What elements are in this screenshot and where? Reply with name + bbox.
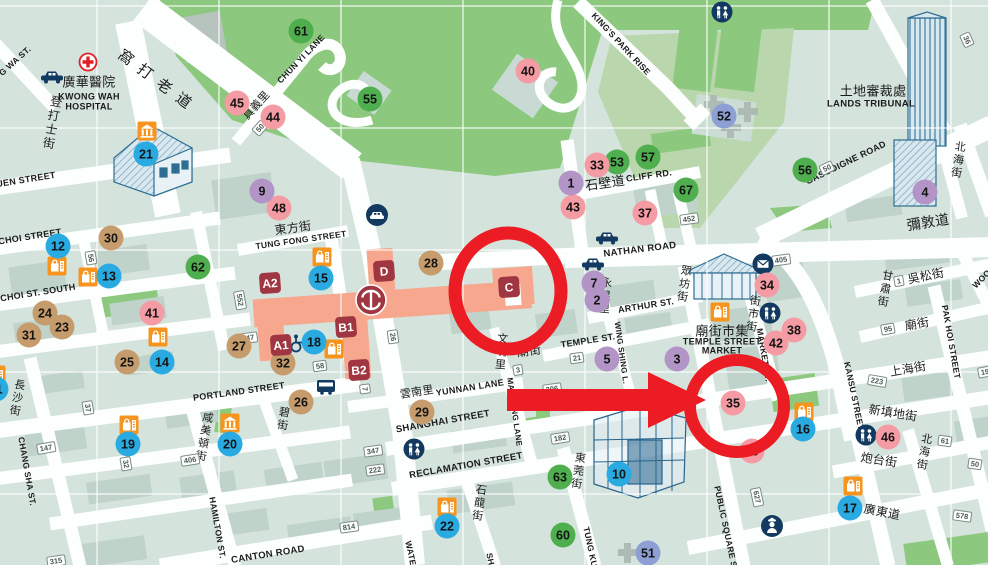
poi-marker-21: 21 (134, 142, 159, 167)
toilets-icon (403, 438, 425, 460)
street-label: 長沙街 (7, 378, 25, 418)
tourist-street-map: G WA ST.登打士街廣華醫院KWONG WAHHOSPITAL窩打老道UEN… (0, 0, 988, 565)
map-labels-layer: G WA ST.登打士街廣華醫院KWONG WAHHOSPITAL窩打老道UEN… (0, 0, 988, 565)
poi-marker-9: 9 (250, 179, 275, 204)
street-label: KING'S PARK RISE (590, 11, 652, 77)
poi-marker-11: 11 (0, 377, 9, 402)
road-number-box: 1 (893, 275, 905, 288)
street-label: 新填地街 (868, 403, 918, 423)
poi-marker-42: 42 (764, 331, 789, 356)
poi-marker-2: 2 (585, 288, 610, 313)
street-label: CHANG SHA ST. (17, 436, 37, 506)
street-label: 北海街 (914, 432, 932, 472)
poi-marker-3: 3 (665, 347, 690, 372)
shop-icon (711, 303, 730, 322)
street-label: PAK HOI STREET (940, 304, 961, 379)
poi-marker-19: 19 (116, 432, 141, 457)
station-exit-D: D (373, 260, 395, 282)
street-label: 窩打老道 (115, 47, 201, 117)
road-number-box: 58 (312, 360, 328, 373)
street-label: PORTLAND STREET (193, 381, 286, 403)
poi-marker-33: 33 (585, 153, 610, 178)
poi-marker-55: 55 (358, 87, 383, 112)
street-label: 文明里 (493, 332, 507, 372)
street-label: SHEK LUNG ST. (485, 552, 508, 565)
station-exit-A1: A1 (270, 334, 292, 356)
road-number-box: 19 (977, 365, 988, 378)
street-label: UEN STREET (0, 171, 56, 189)
shop-icon (313, 248, 332, 267)
road-number-box: 552 (233, 290, 247, 310)
poi-marker-29: 29 (410, 400, 435, 425)
poi-marker-43: 43 (561, 195, 586, 220)
poi-marker-44: 44 (261, 105, 286, 130)
street-label: YUNNAN LANE (435, 378, 504, 398)
street-label: WATERLOO (404, 540, 423, 565)
poi-marker-17: 17 (838, 496, 863, 521)
police-icon (760, 514, 784, 538)
street-label: 眾坊街 (675, 264, 691, 304)
poi-marker-14: 14 (150, 350, 175, 375)
poi-marker-27: 27 (227, 334, 252, 359)
shop-icon (844, 477, 863, 496)
shop-icon (325, 340, 344, 359)
poi-marker-52: 52 (712, 104, 737, 129)
street-label: 碧街 (275, 405, 290, 432)
shop-icon (79, 268, 98, 287)
poi-marker-34: 34 (755, 273, 780, 298)
station-exit-B2: B2 (348, 359, 370, 381)
poi-marker-60: 60 (551, 523, 576, 548)
road-number-box: 36 (959, 31, 975, 49)
street-label: CANTON ROAD (231, 544, 306, 565)
road-number-box: 405 (771, 253, 791, 266)
street-label: 雲南里 (399, 385, 434, 401)
street-label: PUBLIC SQUARE ST. (713, 485, 740, 565)
road-number-box: 95 (880, 322, 896, 335)
poi-marker-16: 16 (791, 417, 816, 442)
street-label: WOOSUNG ST. (971, 238, 988, 290)
poi-marker-57: 57 (636, 145, 661, 170)
poi-marker-62: 62 (186, 255, 211, 280)
street-label: TUNG KUN ST. (582, 526, 603, 565)
poi-marker-25: 25 (115, 350, 140, 375)
road-number-box: 147 (36, 441, 56, 455)
poi-marker-30: 30 (99, 226, 124, 251)
poi-marker-28: 28 (419, 251, 444, 276)
road-number-box: 315 (46, 554, 66, 565)
taxi-icon (40, 70, 64, 84)
road-number-box: 21 (569, 352, 585, 365)
poi-marker-20: 20 (218, 432, 243, 457)
taxi-icon (595, 231, 619, 245)
road-number-box: 26 (387, 329, 400, 345)
road-number-box: 37 (81, 400, 94, 416)
road-number-box: 61 (937, 435, 953, 448)
road-number-box: 50 (967, 458, 983, 471)
poi-marker-10: 10 (607, 462, 632, 487)
poi-marker-63: 63 (548, 465, 573, 490)
poi-marker-5: 5 (595, 347, 620, 372)
street-label: 北海街 (949, 140, 965, 180)
road-number-box: 306 (542, 382, 562, 395)
poi-marker-37: 37 (633, 201, 658, 226)
bus-icon (315, 379, 337, 395)
road-number-box: 3 (512, 364, 524, 376)
station-exit-B1: B1 (335, 316, 357, 338)
street-label: KWONG WAH (58, 93, 120, 102)
toilets-icon (711, 1, 733, 23)
poi-marker-22: 22 (435, 514, 460, 539)
toilets-icon (855, 424, 877, 446)
street-label: G WA ST. (0, 45, 32, 78)
poi-marker-45: 45 (225, 91, 250, 116)
poi-marker-31: 31 (17, 323, 42, 348)
poi-marker-46: 46 (876, 425, 901, 450)
poi-marker-67: 67 (674, 178, 699, 203)
poi-marker-61: 61 (289, 19, 314, 44)
street-label: 廣東道 (863, 503, 902, 522)
street-label: MARKET (702, 347, 742, 356)
poi-marker-4: 4 (913, 180, 938, 205)
road-number-box: 222 (365, 463, 385, 476)
street-label: MAN MING LANE (505, 377, 523, 447)
museum-icon (221, 414, 240, 433)
road-number-box: 32 (119, 456, 132, 472)
street-label: ARTHUR ST. (617, 297, 674, 315)
street-label: KANSU STREET (843, 361, 866, 431)
poi-marker-26: 26 (289, 390, 314, 415)
street-label: 廟街 (904, 316, 930, 332)
street-label: 石壁道 (584, 174, 625, 192)
carpark-icon (365, 203, 389, 227)
poi-marker-15: 15 (309, 266, 334, 291)
museum-icon (138, 122, 157, 141)
poi-marker-56: 56 (793, 158, 818, 183)
poi-marker-39: 39 (740, 439, 765, 464)
road-number-box: 347 (363, 444, 383, 457)
street-label: HOSPITAL (65, 103, 112, 112)
road-number-box: 182 (550, 431, 570, 445)
poi-marker-18: 18 (302, 330, 327, 355)
road-number-box: 7 (359, 383, 371, 395)
poi-marker-41: 41 (140, 301, 165, 326)
street-label: 廟街 (516, 343, 542, 358)
shop-icon (149, 328, 168, 347)
street-label: HAMILTON ST. (208, 496, 227, 559)
street-label: 上海街 (889, 360, 927, 378)
street-label: 廣華醫院 (62, 76, 115, 89)
mtr-icon (354, 283, 388, 317)
road-number-box: 814 (339, 520, 359, 533)
station-exit-C: C (498, 276, 520, 298)
street-label: 炮台街 (860, 451, 898, 469)
road-number-box: 406 (180, 453, 200, 467)
road-number-box: 452 (679, 212, 699, 225)
poi-marker-13: 13 (97, 264, 122, 289)
poi-marker-51: 51 (636, 541, 661, 565)
road-number-box: 223 (867, 374, 887, 388)
street-label: RECLAMATION STREET (409, 451, 524, 480)
street-label: CHOI ST. SOUTH (0, 283, 76, 304)
street-label: CLIFF RD. (625, 168, 672, 183)
street-label: LANDS TRIBUNAL (827, 99, 915, 109)
street-label: 彌敦道 (906, 212, 951, 233)
toilets-icon (759, 302, 781, 324)
taxi-icon (581, 257, 605, 271)
road-number-box: 56 (84, 250, 97, 266)
road-number-box: 578 (952, 509, 972, 522)
poi-marker-12: 12 (46, 234, 71, 259)
street-label: GASCOIGNE ROAD (804, 140, 887, 187)
street-label: 石龍街 (470, 483, 486, 523)
poi-marker-35: 35 (721, 391, 746, 416)
street-label: 登打士街 (41, 94, 63, 151)
station-exit-A2: A2 (259, 272, 281, 294)
street-label: 吳松街 (907, 267, 946, 286)
street-label: 土地審裁處 (840, 85, 907, 98)
post-icon (752, 253, 774, 275)
road-number-box: 627 (750, 487, 765, 507)
poi-marker-40: 40 (516, 59, 541, 84)
shop-icon (48, 257, 67, 276)
hospital-icon (77, 51, 99, 73)
street-label: 甘肅街 (875, 269, 893, 309)
poi-marker-23: 23 (50, 315, 75, 340)
poi-marker-1: 1 (559, 171, 584, 196)
